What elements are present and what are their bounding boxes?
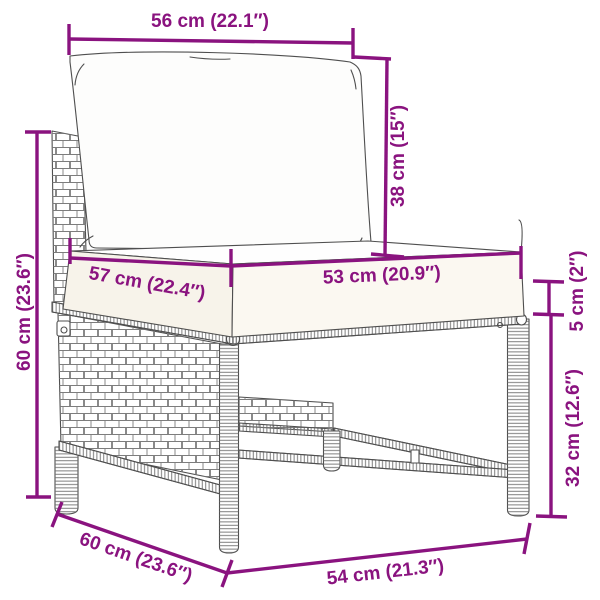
back-cushion (70, 52, 371, 251)
dimension-cushion-thickness: 5 cm (2″) (533, 251, 588, 332)
dim-label-cushion-thickness: 5 cm (2″) (567, 251, 588, 332)
dim-label-overall-height: 60 cm (23.6″) (14, 253, 35, 371)
base-back-panel (239, 397, 333, 437)
dimension-overall-height: 60 cm (23.6″) (14, 132, 51, 497)
dimension-base-width: 54 cm (21.3″) (227, 523, 530, 590)
dimension-frame-height: 32 cm (12.6″) (536, 315, 584, 517)
dimension-base-depth: 60 cm (23.6″) (52, 502, 232, 587)
dimension-back-cushion-width: 56 cm (22.1″) (69, 11, 353, 59)
dim-label-back-cushion-width: 56 cm (22.1″) (151, 11, 269, 32)
dimension-tick (354, 57, 391, 59)
dim-label-frame-height: 32 cm (12.6″) (563, 369, 584, 487)
front-right-leg (508, 319, 530, 516)
dimension-tick (533, 314, 564, 315)
dimension-tick (533, 281, 564, 282)
dimension-tick (536, 516, 567, 517)
stretcher-clamp (411, 450, 419, 463)
dim-label-base-depth: 60 cm (23.6″) (77, 529, 195, 587)
bottom-stretchers (238, 428, 516, 478)
sofa-dimension-drawing: 56 cm (22.1″) 38 cm (15″) 60 cm (23.6″) … (0, 0, 600, 600)
back-left-leg (55, 447, 78, 514)
dim-label-back-cushion-height: 38 cm (15″) (388, 105, 409, 207)
front-left-leg (220, 344, 239, 553)
dimension-diagram: 56 cm (22.1″) 38 cm (15″) 60 cm (23.6″) … (0, 0, 600, 600)
back-middle-leg (324, 431, 341, 471)
